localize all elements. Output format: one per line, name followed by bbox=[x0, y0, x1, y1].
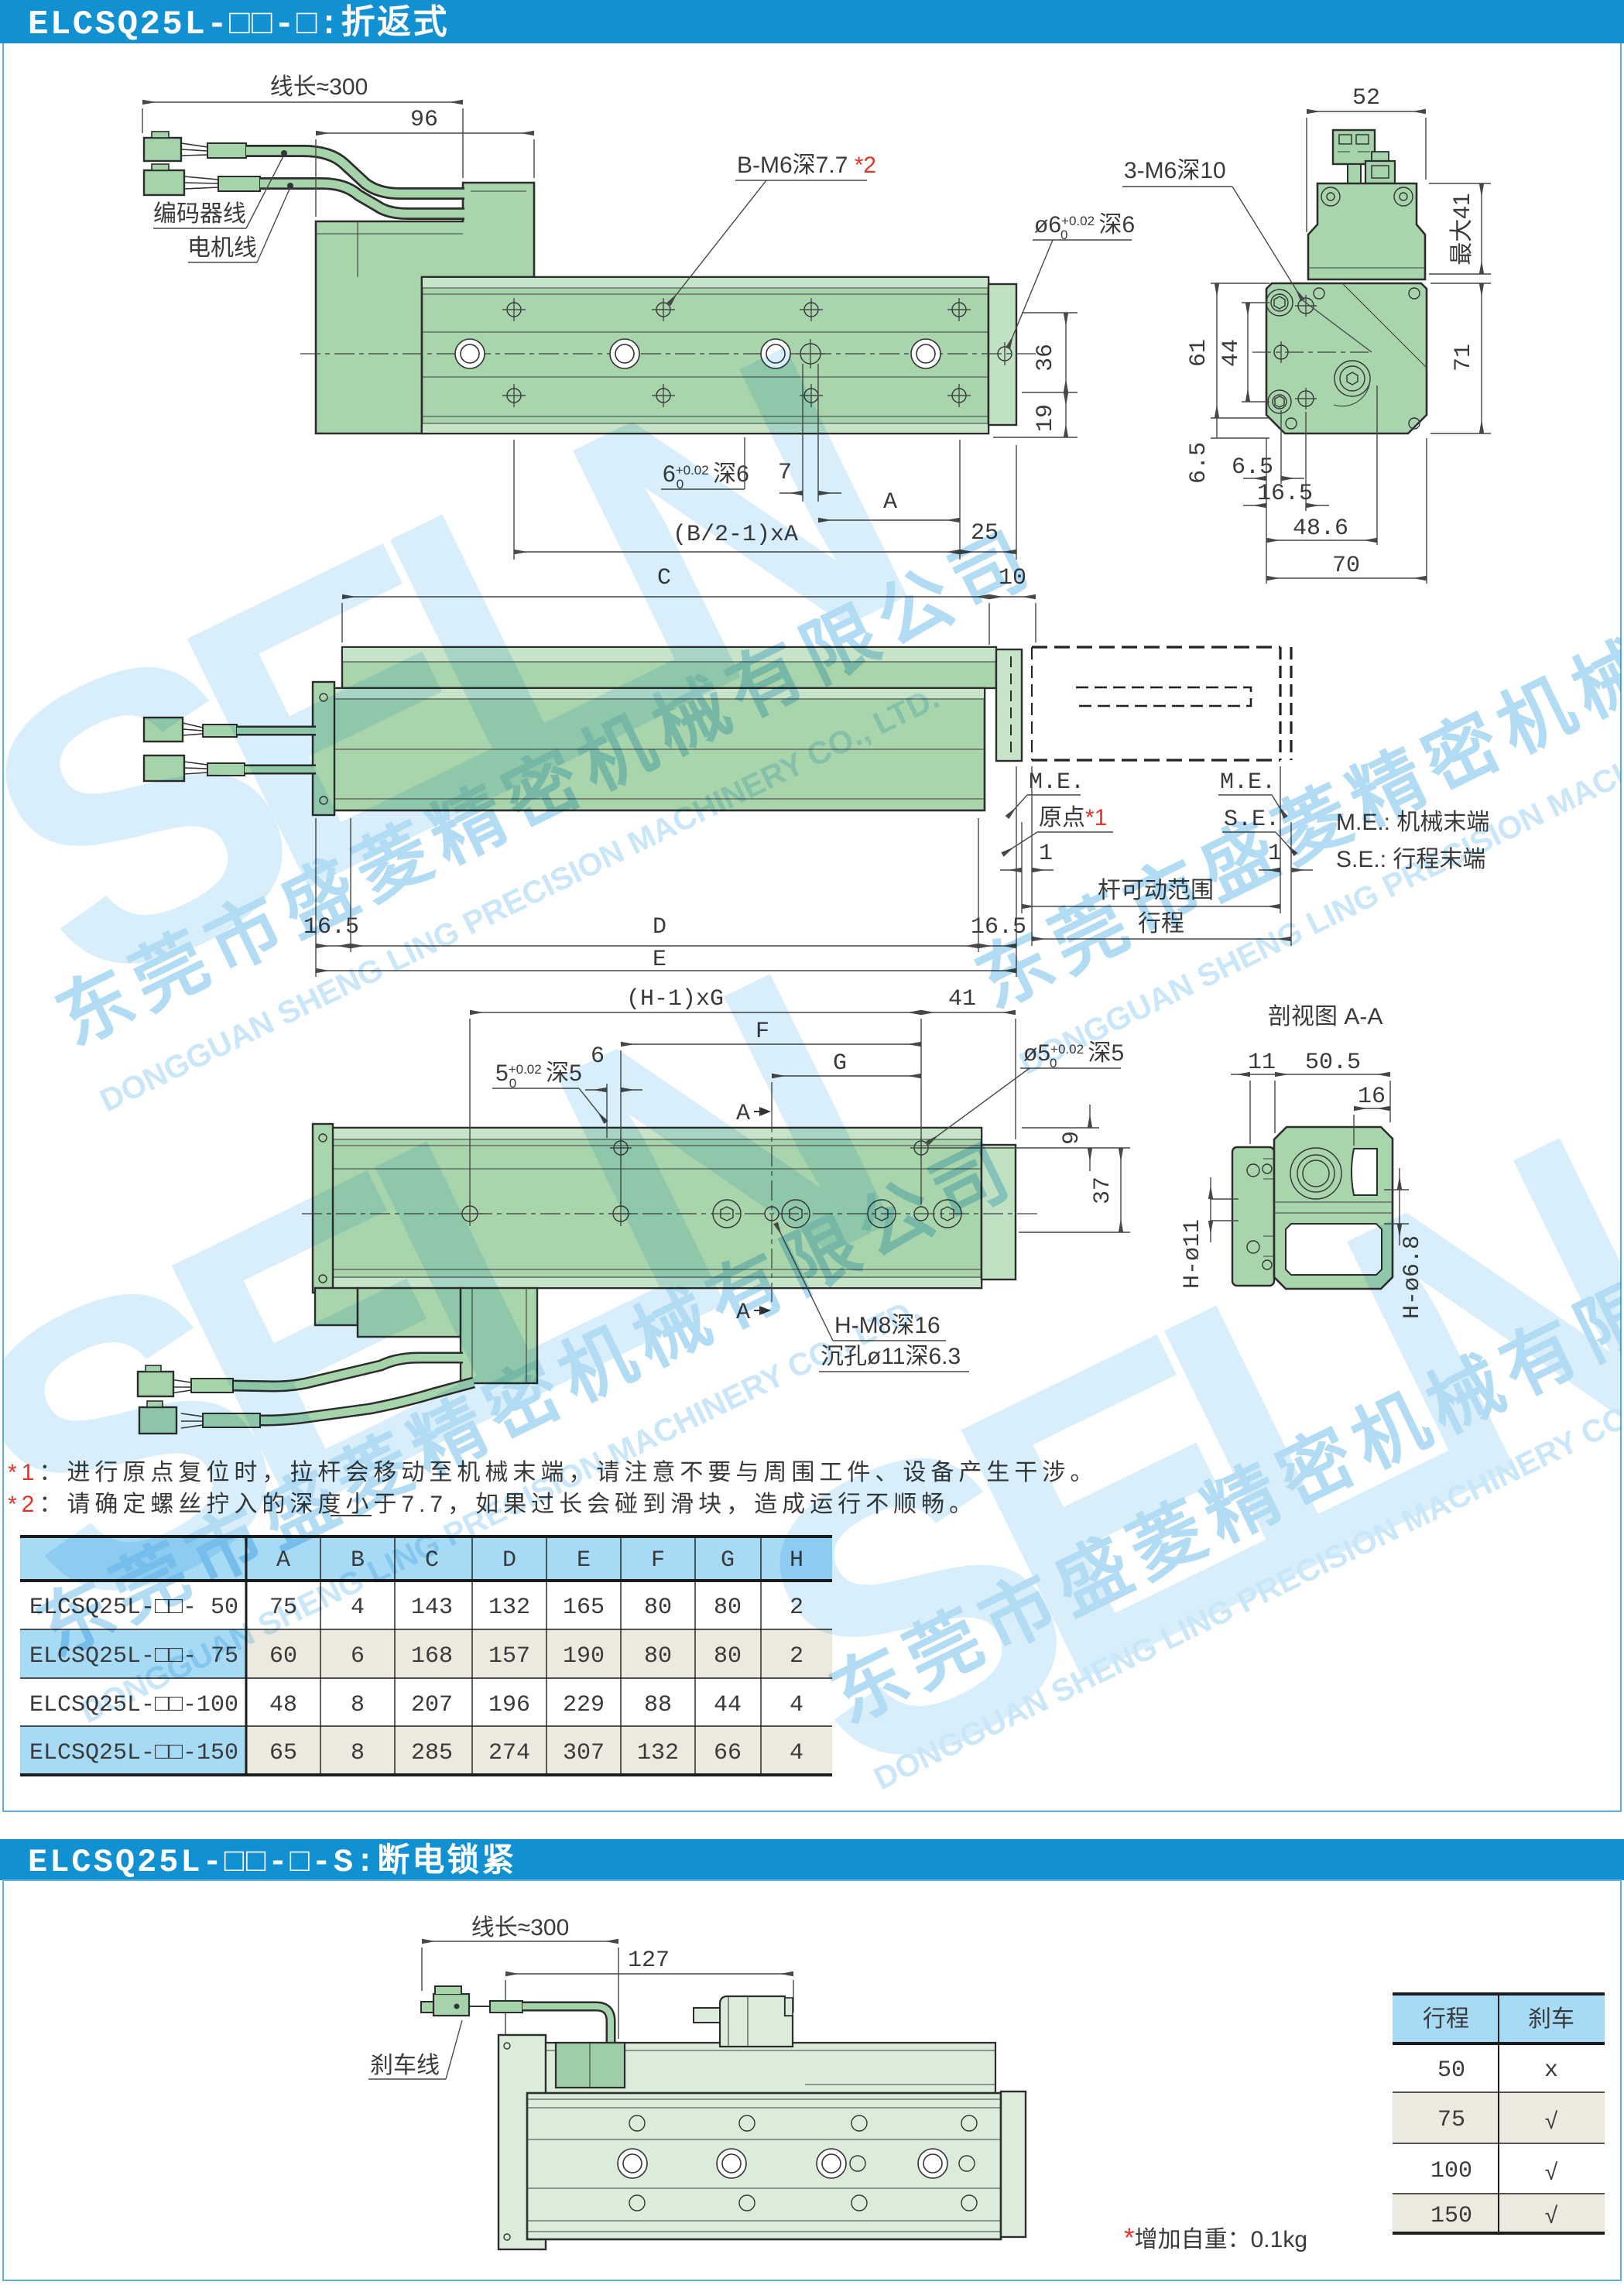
svg-text:41: 41 bbox=[948, 986, 976, 1012]
svg-text:157: 157 bbox=[488, 1643, 530, 1670]
svg-text:168: 168 bbox=[411, 1643, 453, 1670]
svg-text:D: D bbox=[502, 1547, 516, 1574]
svg-text:229: 229 bbox=[563, 1692, 605, 1718]
svg-text:电机线: 电机线 bbox=[187, 235, 257, 261]
svg-text:127: 127 bbox=[628, 1948, 670, 1974]
svg-text:1: 1 bbox=[1039, 841, 1053, 867]
svg-text:70: 70 bbox=[1332, 553, 1360, 579]
svg-text:44: 44 bbox=[714, 1692, 742, 1718]
svg-text:编码器线: 编码器线 bbox=[153, 201, 246, 227]
svg-text:60: 60 bbox=[269, 1643, 297, 1670]
svg-text:E: E bbox=[577, 1547, 591, 1574]
svg-text:48: 48 bbox=[269, 1692, 297, 1718]
svg-text:8: 8 bbox=[351, 1692, 365, 1718]
svg-text:16: 16 bbox=[1358, 1084, 1386, 1110]
svg-text:75: 75 bbox=[1437, 2107, 1465, 2133]
svg-text:ELCSQ25L-□□-□-S:断电锁紧: ELCSQ25L-□□-□-S:断电锁紧 bbox=[28, 1842, 516, 1881]
svg-text:16.5: 16.5 bbox=[1257, 481, 1313, 507]
svg-text:8: 8 bbox=[351, 1740, 365, 1766]
svg-text:6.5: 6.5 bbox=[1232, 454, 1273, 481]
svg-text:线长≈300: 线长≈300 bbox=[471, 1915, 570, 1941]
svg-text:x: x bbox=[1544, 2057, 1558, 2084]
svg-text:11: 11 bbox=[1248, 1050, 1276, 1076]
svg-text:165: 165 bbox=[563, 1595, 605, 1621]
svg-text:50.5: 50.5 bbox=[1305, 1050, 1361, 1076]
svg-text:65: 65 bbox=[269, 1740, 297, 1766]
svg-text:80: 80 bbox=[644, 1643, 672, 1670]
svg-text:285: 285 bbox=[411, 1740, 453, 1766]
svg-text:207: 207 bbox=[411, 1692, 453, 1718]
svg-text:80: 80 bbox=[714, 1643, 742, 1670]
svg-text:G: G bbox=[833, 1050, 847, 1077]
svg-text:G: G bbox=[721, 1547, 735, 1574]
svg-text:80: 80 bbox=[644, 1595, 672, 1621]
svg-text:√: √ bbox=[1545, 2160, 1558, 2185]
svg-text:36: 36 bbox=[1033, 344, 1059, 372]
svg-text:B-M6深7.7 *2: B-M6深7.7 *2 bbox=[737, 152, 876, 178]
svg-text:√: √ bbox=[1545, 2109, 1558, 2134]
svg-text:最大41: 最大41 bbox=[1449, 193, 1475, 265]
svg-text:80: 80 bbox=[714, 1595, 742, 1621]
svg-text:4: 4 bbox=[790, 1692, 803, 1718]
svg-text:143: 143 bbox=[411, 1595, 453, 1621]
svg-text:274: 274 bbox=[488, 1740, 530, 1766]
svg-text:307: 307 bbox=[563, 1740, 605, 1766]
svg-text:原点*1: 原点*1 bbox=[1039, 805, 1107, 831]
svg-text:A: A bbox=[883, 489, 897, 516]
svg-text:线长≈300: 线长≈300 bbox=[270, 74, 368, 100]
svg-text:6: 6 bbox=[351, 1643, 365, 1670]
svg-text:37: 37 bbox=[1090, 1177, 1116, 1204]
svg-text:9: 9 bbox=[1059, 1131, 1085, 1145]
svg-text:ELCSQ25L-□□-□:折返式: ELCSQ25L-□□-□:折返式 bbox=[28, 3, 449, 44]
svg-text:100: 100 bbox=[1430, 2158, 1472, 2184]
svg-text:M.E.: M.E. bbox=[1029, 769, 1084, 796]
svg-text:4: 4 bbox=[790, 1740, 803, 1766]
svg-text:196: 196 bbox=[488, 1692, 530, 1718]
svg-text:3-M6深10: 3-M6深10 bbox=[1124, 158, 1226, 183]
svg-text:*增加自重：0.1kg: *增加自重：0.1kg bbox=[1124, 2223, 1307, 2253]
svg-text:44: 44 bbox=[1218, 339, 1245, 367]
svg-text:剖视图 A-A: 剖视图 A-A bbox=[1268, 1004, 1382, 1029]
svg-text:M.E.: M.E. bbox=[1220, 769, 1276, 796]
svg-text:50: 50 bbox=[1437, 2057, 1465, 2084]
svg-text:190: 190 bbox=[563, 1643, 605, 1670]
svg-text:F: F bbox=[651, 1547, 665, 1574]
svg-text:132: 132 bbox=[488, 1595, 530, 1621]
svg-text:88: 88 bbox=[644, 1692, 672, 1718]
svg-text:66: 66 bbox=[714, 1740, 742, 1766]
svg-text:52: 52 bbox=[1352, 85, 1380, 111]
svg-text:6.5: 6.5 bbox=[1186, 442, 1212, 484]
svg-text:96: 96 bbox=[410, 107, 438, 133]
svg-text:132: 132 bbox=[637, 1740, 679, 1766]
svg-text:√: √ bbox=[1545, 2203, 1558, 2228]
svg-text:150: 150 bbox=[1430, 2203, 1472, 2229]
svg-text:ELCSQ25L-□□-150: ELCSQ25L-□□-150 bbox=[29, 1740, 238, 1766]
svg-text:刹车: 刹车 bbox=[1528, 2006, 1574, 2032]
svg-text:71: 71 bbox=[1451, 344, 1477, 372]
svg-text:刹车线: 刹车线 bbox=[370, 2053, 440, 2078]
svg-text:61: 61 bbox=[1186, 339, 1212, 367]
svg-text:行程: 行程 bbox=[1423, 2006, 1469, 2032]
svg-text:19: 19 bbox=[1033, 404, 1059, 432]
svg-text:48.6: 48.6 bbox=[1293, 516, 1348, 542]
